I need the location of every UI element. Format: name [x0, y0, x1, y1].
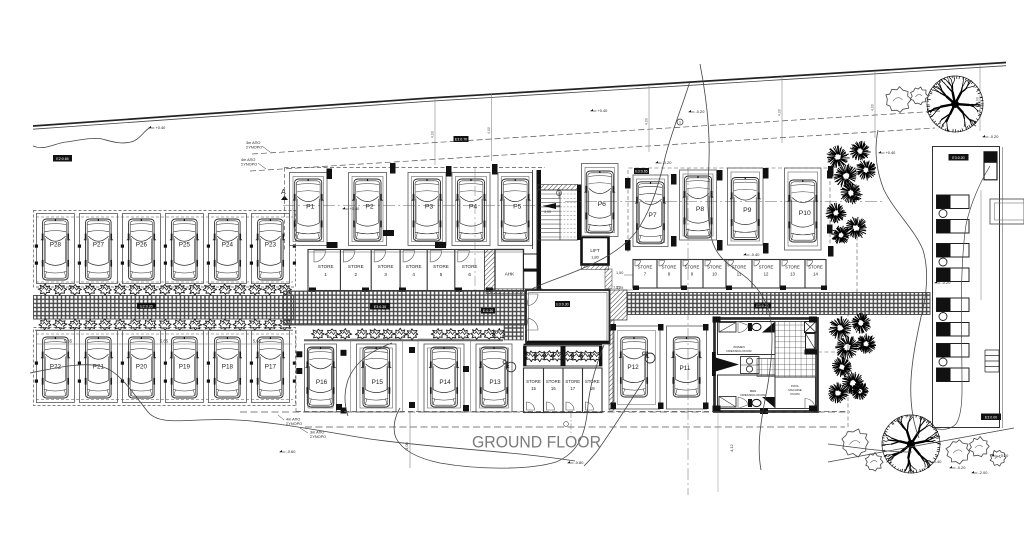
svg-text:-0.40: -0.40 [751, 252, 761, 257]
svg-text:P12: P12 [627, 364, 639, 371]
svg-text:E3:0.30: E3:0.30 [374, 305, 386, 309]
svg-text:STORE: STORE [638, 265, 653, 270]
svg-text:+0.20: +0.20 [999, 453, 1010, 458]
svg-text:STORE: STORE [406, 264, 422, 269]
svg-text:P20: P20 [136, 364, 148, 371]
svg-text:5,65: 5,65 [253, 339, 262, 344]
svg-text:+0.40: +0.40 [156, 125, 167, 130]
svg-text:-0.20: -0.20 [957, 465, 967, 470]
svg-text:+0.40: +0.40 [886, 150, 897, 155]
svg-text:2: 2 [355, 272, 358, 277]
svg-text:GROUND FLOOR: GROUND FLOOR [472, 433, 601, 452]
svg-text:STORE: STORE [707, 265, 722, 270]
svg-text:P6: P6 [598, 201, 607, 208]
svg-text:-0.60: -0.60 [287, 449, 297, 454]
svg-text:-0.20: -0.20 [663, 160, 673, 165]
svg-text:1: 1 [324, 272, 327, 277]
svg-text:E3:0.00: E3:0.00 [985, 416, 997, 420]
svg-text:E2:0.65: E2:0.65 [56, 157, 68, 161]
svg-text:15: 15 [531, 386, 536, 391]
svg-text:STORE: STORE [759, 265, 774, 270]
svg-text:3,00: 3,00 [404, 441, 409, 450]
svg-text:E3:0.30: E3:0.30 [556, 303, 568, 307]
svg-text:P8: P8 [696, 206, 705, 213]
svg-text:13: 13 [790, 272, 795, 277]
svg-text:P14: P14 [439, 379, 451, 386]
svg-text:STORE: STORE [318, 264, 334, 269]
svg-text:16: 16 [551, 386, 556, 391]
svg-text:P19: P19 [179, 364, 191, 371]
svg-text:DRESSING ROOM: DRESSING ROOM [727, 349, 752, 353]
svg-text:STORE: STORE [462, 264, 478, 269]
svg-text:+0.40: +0.40 [350, 206, 361, 211]
svg-text:P24: P24 [222, 242, 234, 249]
svg-text:-0.80: -0.80 [575, 460, 585, 465]
svg-text:STORE: STORE [785, 265, 800, 270]
svg-text:4,00: 4,00 [871, 104, 875, 111]
svg-text:1,80: 1,80 [591, 255, 600, 260]
svg-text:4,00: 4,00 [431, 131, 435, 138]
svg-text:5: 5 [440, 272, 443, 277]
svg-text:STORE: STORE [808, 265, 823, 270]
svg-text:4,12: 4,12 [729, 443, 734, 452]
svg-text:P16: P16 [316, 379, 328, 386]
svg-text:P17: P17 [265, 364, 277, 371]
svg-text:P1: P1 [306, 204, 315, 211]
svg-text:P26: P26 [136, 242, 148, 249]
svg-text:STORE: STORE [565, 379, 580, 384]
svg-text:3: 3 [384, 272, 387, 277]
svg-text:P28: P28 [50, 242, 62, 249]
svg-text:P13: P13 [489, 379, 501, 386]
svg-text:STORE: STORE [348, 264, 364, 269]
svg-text:6: 6 [468, 272, 471, 277]
svg-text:4: 4 [412, 272, 415, 277]
svg-text:P9: P9 [743, 207, 752, 214]
svg-text:STORE: STORE [433, 264, 449, 269]
svg-text:P27: P27 [93, 242, 105, 249]
svg-text:P25: P25 [179, 242, 191, 249]
svg-text:AHK: AHK [505, 272, 515, 277]
svg-text:-0.20: -0.20 [990, 134, 1000, 139]
svg-text:ΣYNOPO: ΣYNOPO [310, 435, 326, 439]
svg-text:DRESSING ROOM: DRESSING ROOM [741, 393, 766, 397]
svg-text:ROOM: ROOM [791, 392, 801, 396]
svg-text:1,50: 1,50 [616, 271, 623, 275]
svg-text:4m AΠO: 4m AΠO [241, 158, 255, 162]
svg-text:P10: P10 [799, 210, 811, 217]
svg-text:STORE: STORE [546, 379, 561, 384]
svg-text:4,00: 4,00 [778, 109, 782, 116]
svg-text:4m AΠO: 4m AΠO [286, 418, 300, 422]
svg-text:E:0.30: E:0.30 [483, 309, 493, 313]
svg-text:P15: P15 [372, 379, 384, 386]
svg-text:P3: P3 [425, 204, 434, 211]
svg-text:4,00: 4,00 [544, 210, 551, 214]
svg-text:P11: P11 [680, 365, 691, 372]
svg-text:-0.20: -0.20 [696, 109, 706, 114]
svg-text:STORE: STORE [662, 265, 677, 270]
svg-text:STORE: STORE [685, 265, 700, 270]
svg-text:14: 14 [813, 272, 818, 277]
svg-text:3m AΠO: 3m AΠO [246, 141, 260, 145]
svg-text:12: 12 [764, 272, 769, 277]
svg-text:+0.40: +0.40 [598, 108, 609, 113]
svg-text:LIFT: LIFT [590, 248, 600, 253]
svg-text:5,65: 5,65 [160, 339, 169, 344]
svg-text:1,25: 1,25 [613, 286, 620, 290]
svg-text:-2.00: -2.00 [979, 470, 989, 475]
svg-text:STORE: STORE [526, 379, 541, 384]
svg-text:E2:0.20: E2:0.20 [140, 305, 152, 309]
svg-text:E3:0.70: E3:0.70 [455, 138, 467, 142]
svg-text:5,65: 5,65 [64, 339, 73, 344]
svg-text:ΣYNOPO: ΣYNOPO [246, 146, 262, 150]
svg-text:4,00: 4,00 [645, 118, 649, 125]
svg-text:4,00: 4,00 [487, 127, 491, 134]
svg-text:P18: P18 [222, 364, 234, 371]
svg-text:ΣYNOPO: ΣYNOPO [241, 163, 257, 167]
svg-text:P2: P2 [365, 204, 374, 211]
svg-text:-0.20: -0.20 [942, 280, 952, 285]
svg-text:P5: P5 [513, 204, 522, 211]
svg-text:STORE: STORE [378, 264, 394, 269]
svg-text:17: 17 [570, 386, 575, 391]
svg-text:10: 10 [712, 272, 717, 277]
svg-text:-0.40: -0.40 [933, 459, 943, 464]
svg-text:P4: P4 [469, 204, 478, 211]
svg-text:A: A [281, 189, 286, 196]
svg-text:E3:0.00: E3:0.00 [952, 156, 964, 160]
svg-text:P23: P23 [265, 242, 277, 249]
svg-text:P7: P7 [648, 212, 657, 219]
svg-text:E3:0.65: E3:0.65 [635, 170, 647, 174]
